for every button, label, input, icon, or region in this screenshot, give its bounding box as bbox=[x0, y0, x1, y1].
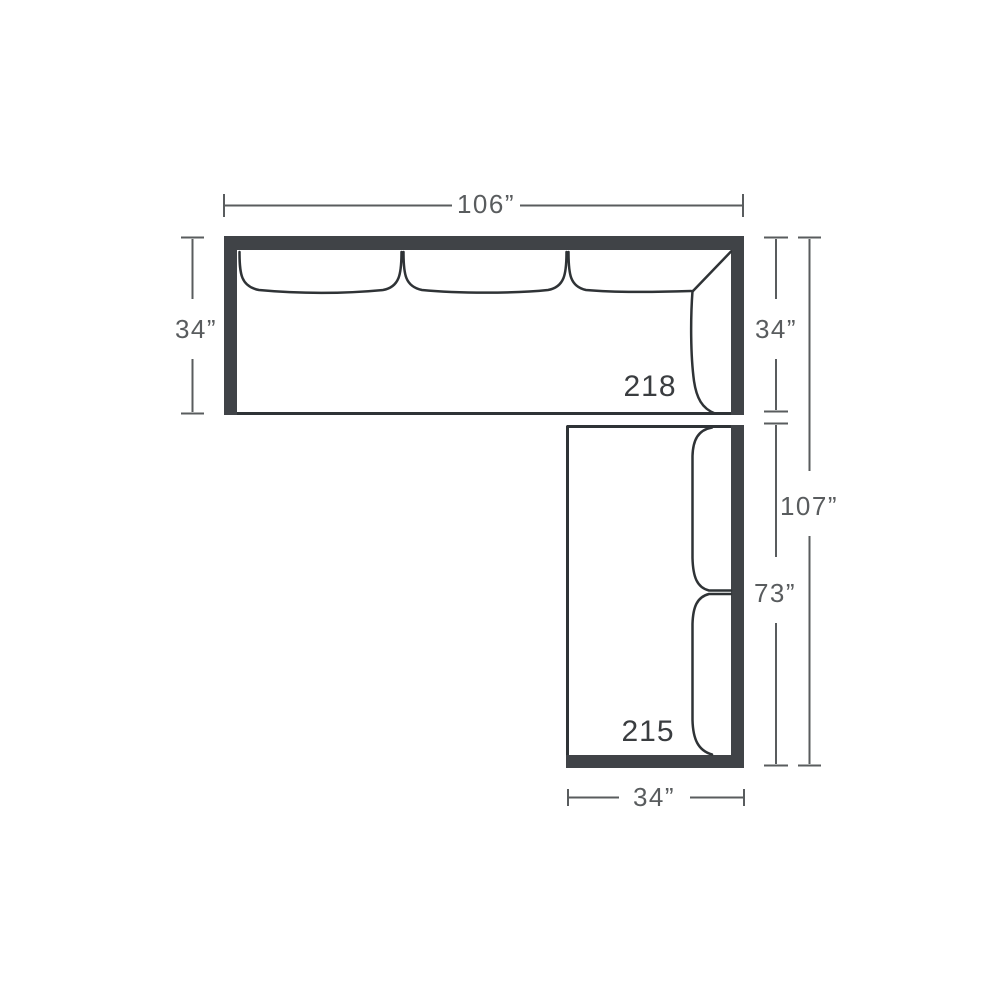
sofa-218-back-frame bbox=[224, 236, 744, 250]
sofa-215-back-cushion-2 bbox=[693, 594, 732, 755]
sofa-218-back-cushion-2 bbox=[404, 252, 567, 293]
dim-top-width-label: 106” bbox=[457, 189, 515, 219]
sofa-215-end-frame bbox=[566, 755, 744, 768]
dim-right-overall-label: 107” bbox=[780, 491, 838, 521]
sofa-218-label: 218 bbox=[623, 370, 676, 403]
dim-left-depth-label: 34” bbox=[175, 314, 217, 344]
dim-left-depth: 34” bbox=[175, 238, 217, 414]
sofa-215-back-frame bbox=[731, 425, 744, 768]
dim-right-depth-label: 34” bbox=[755, 314, 797, 344]
dim-bottom-width: 34” bbox=[568, 782, 744, 812]
dim-top-width: 106” bbox=[224, 189, 743, 219]
sofa-218-right-frame bbox=[731, 236, 744, 415]
dim-side-length: 73” bbox=[754, 424, 796, 766]
sofa-218-corner-cushion-edge bbox=[691, 291, 715, 414]
diagram-svg: 218 215 106” 34” bbox=[0, 0, 1000, 1000]
sectional-sofa-diagram: 218 215 106” 34” bbox=[0, 0, 1000, 1000]
sofa-218-corner-diagonal-line bbox=[693, 252, 731, 292]
sofa-218: 218 bbox=[224, 236, 744, 415]
sofa-215-back-cushion-1 bbox=[693, 428, 732, 591]
sofa-218-left-arm-frame bbox=[224, 236, 237, 415]
dim-side-length-label: 73” bbox=[754, 578, 796, 608]
sofa-215: 215 bbox=[566, 425, 744, 768]
sofa-218-back-cushion-3 bbox=[569, 252, 692, 292]
sofa-218-back-cushion-1 bbox=[240, 252, 402, 293]
dim-right-depth: 34” bbox=[755, 238, 797, 412]
dim-bottom-width-label: 34” bbox=[633, 782, 675, 812]
sofa-215-label: 215 bbox=[621, 715, 674, 748]
